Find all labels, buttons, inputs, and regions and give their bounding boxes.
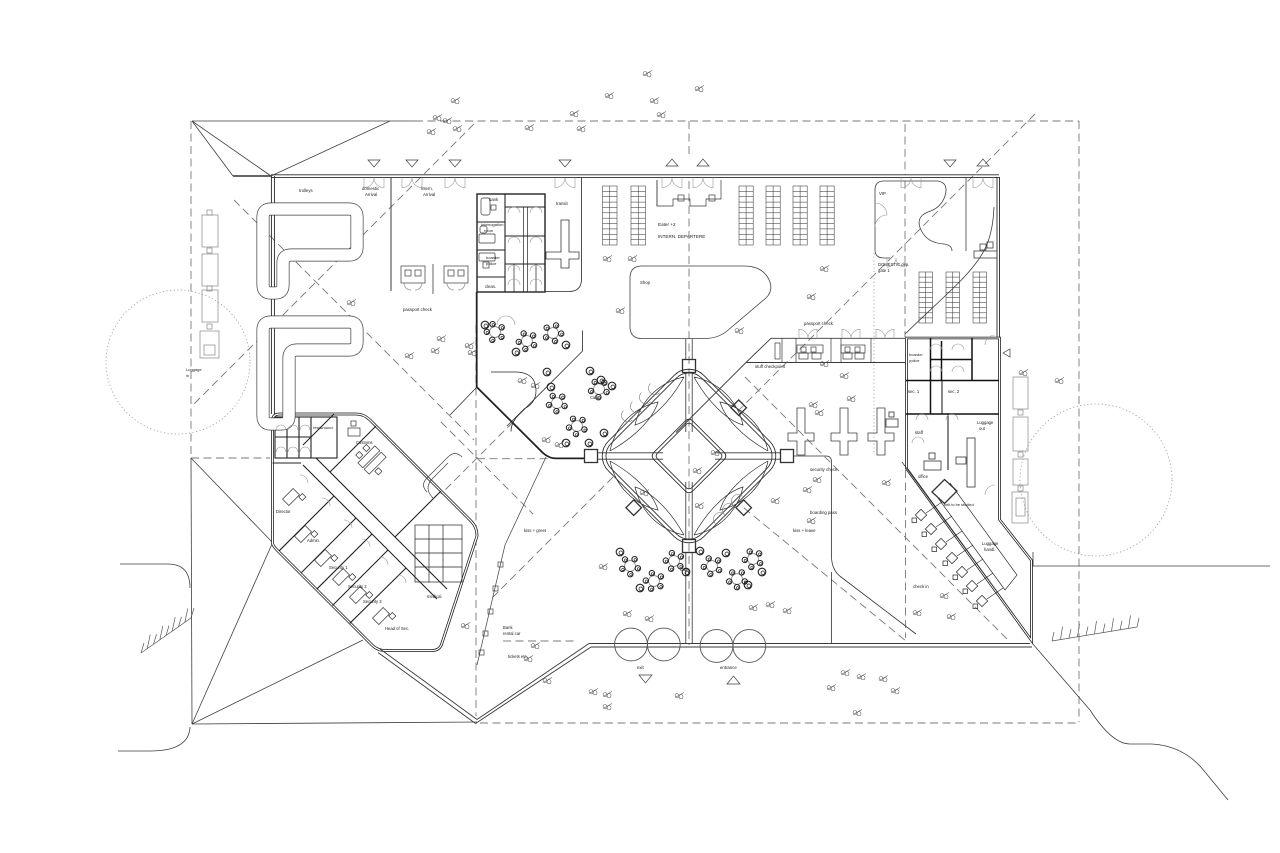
- svg-text:VIP: VIP: [879, 191, 886, 196]
- svg-text:medical: medical: [427, 594, 441, 599]
- svg-text:passport check: passport check: [403, 307, 433, 312]
- svg-text:Luggage: Luggage: [982, 541, 999, 546]
- svg-text:boarder: boarder: [486, 255, 500, 260]
- svg-text:kiss + greet: kiss + greet: [524, 528, 547, 533]
- svg-text:trolleys: trolleys: [299, 188, 313, 193]
- svg-text:domestic: domestic: [362, 186, 380, 191]
- svg-text:Cafe: Cafe: [680, 567, 690, 572]
- svg-text:sec. 2: sec. 2: [948, 389, 960, 394]
- svg-text:kiss + leave: kiss + leave: [793, 528, 816, 533]
- svg-text:police: police: [909, 358, 920, 363]
- svg-text:Security 2: Security 2: [348, 584, 367, 589]
- svg-text:Arrival: Arrival: [423, 192, 435, 197]
- svg-text:sec. 1: sec. 1: [908, 389, 920, 394]
- svg-text:intern.: intern.: [421, 186, 433, 191]
- svg-text:Admin.: Admin.: [307, 538, 320, 543]
- svg-text:handl.: handl.: [984, 547, 995, 552]
- svg-text:Director: Director: [276, 509, 291, 514]
- svg-text:boarding pass: boarding pass: [810, 510, 837, 515]
- svg-text:stuff checkpoint: stuff checkpoint: [755, 364, 786, 369]
- svg-text:Luggage: Luggage: [977, 420, 994, 425]
- svg-text:office: office: [918, 474, 929, 479]
- svg-text:rental car: rental car: [503, 631, 521, 636]
- svg-text:out: out: [979, 426, 986, 431]
- svg-text:gate 1: gate 1: [878, 268, 890, 273]
- svg-text:bank: bank: [489, 197, 499, 202]
- svg-text:Security 3: Security 3: [363, 599, 382, 604]
- svg-text:rest&round: rest&round: [313, 425, 333, 430]
- svg-text:entrance: entrance: [720, 665, 737, 670]
- svg-text:DOMESTIC dep.: DOMESTIC dep.: [878, 262, 909, 267]
- svg-text:clean.: clean.: [485, 284, 496, 289]
- svg-text:exit: exit: [637, 665, 644, 670]
- svg-text:INTERN. DEPARTERE: INTERN. DEPARTERE: [658, 234, 705, 239]
- svg-text:belt to be studied: belt to be studied: [944, 502, 974, 507]
- svg-text:Bank: Bank: [503, 625, 513, 630]
- svg-text:tickets etc.: tickets etc.: [508, 654, 528, 659]
- svg-text:Security 1: Security 1: [329, 565, 348, 570]
- svg-text:Head of Sec.: Head of Sec.: [385, 626, 409, 631]
- svg-text:Customs: Customs: [356, 440, 373, 445]
- svg-text:transit: transit: [556, 201, 569, 206]
- svg-text:in: in: [186, 373, 189, 378]
- svg-text:boarder: boarder: [909, 352, 923, 357]
- svg-text:passport check: passport check: [804, 321, 834, 326]
- svg-text:police: police: [486, 261, 497, 266]
- svg-text:check in: check in: [913, 584, 929, 589]
- svg-text:Luggage: Luggage: [186, 367, 202, 372]
- svg-text:Arrival: Arrival: [365, 192, 377, 197]
- svg-text:Shop: Shop: [640, 280, 651, 285]
- svg-text:Interrogation: Interrogation: [481, 222, 503, 227]
- svg-text:staff: staff: [915, 430, 924, 435]
- svg-text:Cafe: Cafe: [590, 395, 600, 400]
- svg-text:Eater +2: Eater +2: [658, 222, 676, 227]
- svg-text:security check: security check: [810, 467, 838, 472]
- svg-text:room: room: [484, 228, 494, 233]
